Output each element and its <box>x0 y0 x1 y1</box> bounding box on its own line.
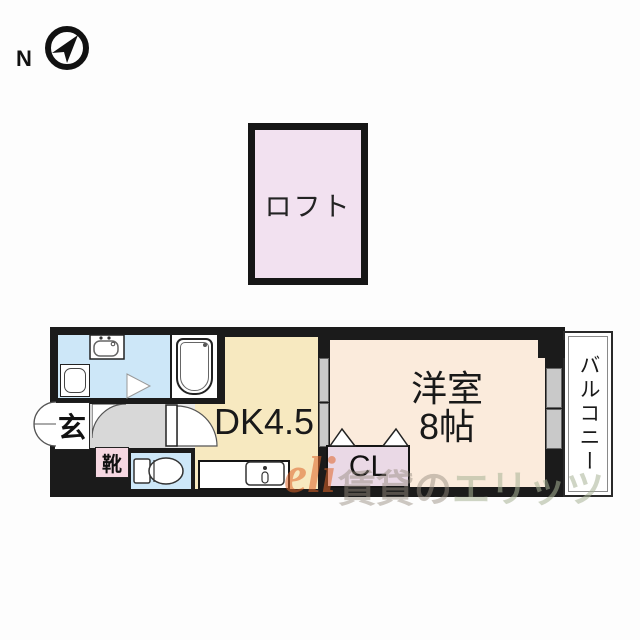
bathroom-door-icon <box>126 372 152 400</box>
loft-label: ロフト <box>265 185 352 224</box>
wall-pillar <box>538 340 565 358</box>
kitchen-sink-icon <box>245 461 287 488</box>
bedroom-label: 洋室 8帖 <box>384 370 510 446</box>
north-label: N <box>16 46 32 72</box>
shoe-label: 靴 <box>102 448 122 477</box>
dk-door-swing-icon <box>164 402 220 448</box>
washing-machine-icon <box>60 364 90 397</box>
closet-label: CL <box>349 450 387 484</box>
balcony-inner-border: バルコニー <box>568 336 608 492</box>
bathtub-icon <box>176 338 213 395</box>
loft-room: ロフト <box>248 123 368 285</box>
shoe-cabinet: 靴 <box>95 447 129 478</box>
bedroom-label-line1: 洋室 <box>384 370 510 408</box>
washroom-door-swing-icon <box>92 404 128 440</box>
toilet-icon <box>133 455 189 487</box>
balcony-label: バルコニー <box>573 354 603 474</box>
washing-machine-drum <box>64 368 86 393</box>
sliding-door-panel <box>319 358 329 402</box>
entrance-genkan: 玄 <box>54 402 90 450</box>
balcony-window-panel <box>546 409 562 449</box>
bedroom-label-line2: 8帖 <box>384 408 510 446</box>
balcony: バルコニー <box>563 331 613 497</box>
closet: CL <box>326 445 410 488</box>
balcony-window-panel <box>546 368 562 408</box>
entrance-label: 玄 <box>58 406 86 446</box>
entrance-door-swing-icon <box>32 400 58 448</box>
washbasin-icon <box>89 334 125 360</box>
bathtub-inner <box>180 342 209 391</box>
dk-label: DK4.5 <box>214 401 314 443</box>
bathtub-faucet-icon <box>203 343 207 347</box>
